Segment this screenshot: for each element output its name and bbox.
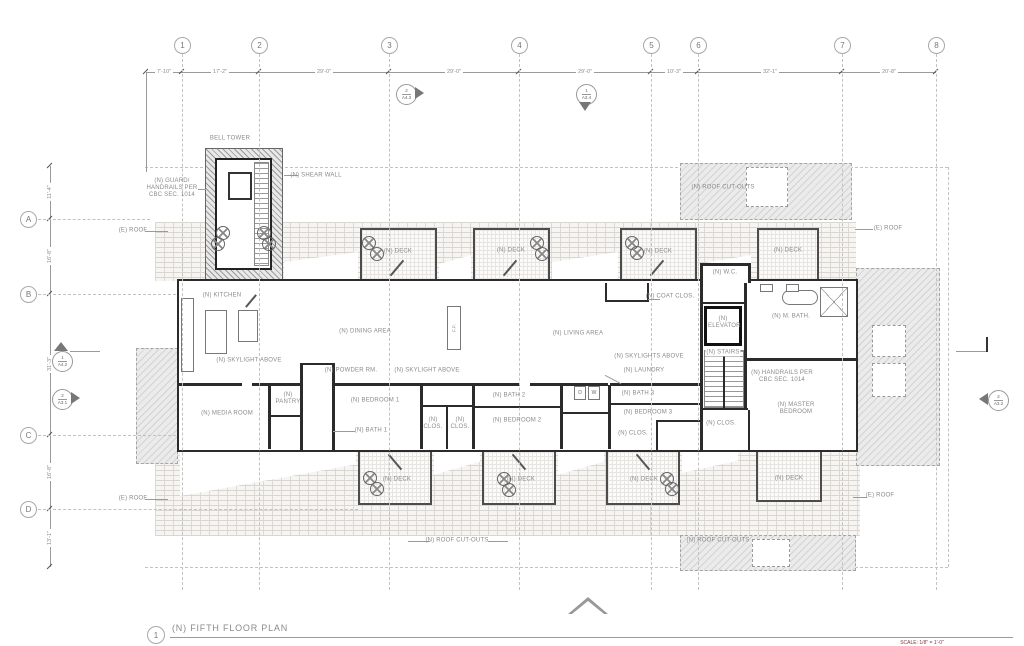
grid-bubble-7: 7: [834, 37, 851, 54]
deck-label: (N) DECK: [775, 475, 803, 482]
wall-segment: [472, 385, 475, 449]
deck-label: (N) DECK: [507, 476, 535, 483]
media-room-label: (N) MEDIA ROOM: [201, 410, 253, 417]
leader-line: [70, 351, 100, 352]
sink: [786, 284, 799, 292]
wall-segment: [420, 405, 474, 407]
elevator-label: (N) ELEVATOR: [708, 316, 738, 330]
bedroom1-label: (N) BEDROOM 1: [351, 397, 400, 404]
bath1-label: (N) BATH 1: [355, 427, 388, 434]
grid-bubble-4: 4: [511, 37, 528, 54]
section-number: 2: [58, 393, 67, 400]
dim-label: 13'-1": [47, 529, 53, 547]
wall-segment: [300, 363, 303, 450]
shower: [820, 287, 848, 317]
closet-label: (N) CLOS.: [618, 430, 648, 437]
deck-label: (N) DECK: [774, 247, 802, 254]
wall-segment: [332, 363, 335, 450]
grid-bubble-B: B: [20, 286, 37, 303]
plant-icon: [262, 237, 276, 251]
grid-bubble-1: 1: [174, 37, 191, 54]
wall-segment: [560, 385, 563, 449]
existing-roof-label: (E) ROOF: [874, 225, 903, 232]
grid-line: [651, 54, 652, 590]
wall-segment: [610, 383, 702, 386]
section-arrow-icon: [415, 87, 424, 99]
dim-label: 29'-0": [445, 69, 463, 75]
bedroom3-label: (N) BEDROOM 3: [624, 409, 673, 416]
guard-handrails-note: (N) GUARD/ HANDRAILS PER CBC SEC. 1014: [143, 178, 201, 200]
dining-area-label: (N) DINING AREA: [339, 328, 391, 335]
wall-segment: [179, 383, 242, 386]
roof-hatch-area: [136, 348, 178, 464]
wall-segment: [446, 407, 448, 449]
section-arrow-icon: [979, 393, 988, 405]
powder-room-label: (N) POWDER RM.: [325, 367, 377, 374]
bell-tower-label: BELL TOWER: [210, 135, 250, 142]
wall-segment: [560, 412, 608, 414]
existing-roof-label: (E) ROOF: [866, 492, 895, 499]
section-arrow-icon: [54, 342, 68, 351]
grid-line: [38, 509, 358, 510]
kitchen-island: [238, 310, 258, 342]
wall-segment: [748, 263, 751, 283]
dim-label: 7'-10": [155, 69, 173, 75]
skylight-label: (N) SKYLIGHT ABOVE: [216, 357, 281, 364]
existing-roof-label: (E) ROOF: [119, 495, 148, 502]
closet-label: (N) CLOS.: [449, 417, 471, 431]
closet-label: (N) CLOS.: [706, 420, 736, 427]
handrails-note: (N) HANDRAILS PER CBC SEC. 1014: [751, 370, 813, 384]
grid-line: [519, 54, 520, 590]
title-underline: [170, 637, 1013, 638]
deck-label: (N) DECK: [497, 247, 525, 254]
wall-segment: [605, 300, 649, 302]
bell-shaft: [228, 172, 252, 200]
shear-wall-label: (N) SHEAR WALL: [290, 172, 341, 179]
section-number: 1: [58, 355, 67, 362]
deck-label: (N) DECK: [630, 476, 658, 483]
dim-label: 20'-8": [880, 69, 898, 75]
drawing-title: (N) FIFTH FLOOR PLAN: [172, 623, 288, 633]
grid-line: [38, 219, 150, 220]
wall-segment: [700, 281, 703, 450]
dim-label: 29'-0": [576, 69, 594, 75]
sink: [760, 284, 773, 292]
wall-segment: [605, 283, 607, 300]
skylights-label: (N) SKYLIGHTS ABOVE: [614, 353, 683, 360]
laundry-label: (N) LAUNDRY: [624, 367, 665, 374]
dryer: D: [574, 386, 586, 400]
plant-icon: [535, 247, 549, 261]
wall-segment: [656, 420, 702, 422]
deck-label: (N) DECK: [384, 248, 412, 255]
master-bedroom-label: (N) MASTER BEDROOM: [767, 402, 825, 416]
leader-line: [488, 541, 508, 542]
grid-bubble-6: 6: [690, 37, 707, 54]
grid-bubble-D: D: [20, 501, 37, 518]
section-sheet: A3.1: [58, 400, 67, 406]
roof-cutouts-label: (N) ROOF CUT-OUTS: [425, 537, 488, 544]
roof-cutouts-label: (N) ROOF CUT-OUTS: [686, 537, 749, 544]
grid-line: [936, 54, 937, 590]
grid-bubble-C: C: [20, 427, 37, 444]
skylight-label: (N) SKYLIGHT ABOVE: [394, 367, 459, 374]
grid-line: [842, 54, 843, 590]
wall-segment: [472, 383, 520, 386]
plant-icon: [630, 246, 644, 260]
floor-plan-sheet: 1 2 3 4 5 6 7 8 7'-10" 17'-2" 29'-0" 29'…: [0, 0, 1024, 646]
stairs-label: (N) STAIRS: [705, 349, 740, 356]
section-marker: 2 A4.3: [396, 84, 417, 105]
grid-line: [38, 294, 176, 295]
stair-rail: [723, 350, 725, 408]
section-number: 2: [994, 394, 1003, 401]
washer: W: [588, 386, 600, 400]
existing-roof-label: (E) ROOF: [119, 227, 148, 234]
closet-label: (N) CLOS.: [422, 417, 444, 431]
grid-bubble-5: 5: [643, 37, 660, 54]
wall-segment: [268, 415, 302, 417]
wall-segment: [608, 385, 611, 449]
wall-segment: [300, 363, 334, 365]
leader-line: [855, 229, 873, 230]
living-area-label: (N) LIVING AREA: [553, 330, 603, 337]
detail-number-bubble: 1: [147, 626, 165, 644]
deck-label: (N) DECK: [644, 248, 672, 255]
dim-label: 16'-8": [47, 463, 53, 481]
leader-line: [333, 431, 355, 432]
grid-bubble-2: 2: [251, 37, 268, 54]
fireplace-label: F.P.: [451, 324, 456, 332]
dim-label: 11'-4": [47, 183, 53, 201]
grid-line: [38, 435, 176, 436]
wall-segment: [700, 263, 750, 266]
dim-label: 17'-2": [211, 69, 229, 75]
building-outline: [177, 279, 858, 452]
wall-segment: [474, 406, 560, 408]
plant-icon: [665, 482, 679, 496]
wall-segment: [268, 385, 271, 449]
extension-line: [146, 72, 147, 172]
scale-note: SCALE: 1/8" = 1'-0": [900, 640, 944, 646]
section-arrow-icon: [572, 601, 604, 614]
grid-line: [698, 54, 699, 590]
leader-line: [145, 231, 168, 232]
section-number: 2: [402, 88, 411, 95]
bath2-label: (N) BATH 2: [493, 392, 526, 399]
bedroom2-label: (N) BEDROOM 2: [493, 417, 542, 424]
dim-tick: [47, 564, 53, 570]
roof-notch: [872, 325, 906, 357]
section-marker: 2 A3.1: [52, 389, 73, 410]
roof-cutouts-label: (N) ROOF CUT-OUTS: [691, 184, 754, 191]
wall-segment: [656, 420, 658, 450]
plant-icon: [211, 237, 225, 251]
grid-bubble-A: A: [20, 211, 37, 228]
wall-segment: [744, 283, 747, 410]
section-number: 1: [582, 88, 591, 95]
roof-notch: [872, 363, 906, 397]
wall-segment: [748, 410, 750, 450]
grid-bubble-3: 3: [381, 37, 398, 54]
leader-line: [145, 499, 168, 500]
property-line: [948, 167, 949, 567]
dim-label: 16'-8": [47, 247, 53, 265]
section-sheet: A3.4: [582, 95, 591, 101]
section-arrow-icon: [71, 392, 80, 404]
dim-label: 10'-3": [665, 69, 683, 75]
section-sheet: A4.3: [402, 95, 411, 101]
wall-segment: [702, 302, 744, 304]
grid-bubble-8: 8: [928, 37, 945, 54]
dim-label: 29'-0": [315, 69, 333, 75]
wall-segment: [700, 263, 703, 283]
grid-line: [389, 54, 390, 590]
section-marker: 2 A3.2: [988, 390, 1009, 411]
roof-notch: [752, 539, 790, 567]
section-sheet: A3.2: [994, 401, 1003, 407]
dimension-line: [146, 72, 936, 73]
coat-closet-label: (N) COAT CLOS.: [646, 293, 695, 300]
section-sheet: A4.2: [58, 362, 67, 368]
wc-label: (N) W.C.: [713, 269, 738, 276]
plant-icon: [370, 247, 384, 261]
wall-segment: [334, 383, 472, 386]
plant-icon: [502, 483, 516, 497]
plant-icon: [370, 482, 384, 496]
deck-label: (N) DECK: [383, 476, 411, 483]
wall-segment: [746, 358, 856, 361]
section-arrow-icon: [579, 102, 591, 111]
wall-segment: [610, 403, 702, 405]
kitchen-label: (N) KITCHEN: [203, 292, 242, 299]
master-bath-label: (N) M. BATH.: [772, 313, 810, 320]
kitchen-island: [205, 310, 227, 354]
bath3-label: (N) BATH 3: [622, 390, 655, 397]
pantry-label: (N) PANTRY: [274, 392, 302, 406]
level-marker: [986, 337, 988, 352]
section-marker: 1 A4.2: [52, 351, 73, 372]
level-marker: [956, 351, 986, 352]
bathtub: [782, 290, 818, 305]
wall-segment: [702, 408, 748, 410]
dim-label: 32'-1": [761, 69, 779, 75]
